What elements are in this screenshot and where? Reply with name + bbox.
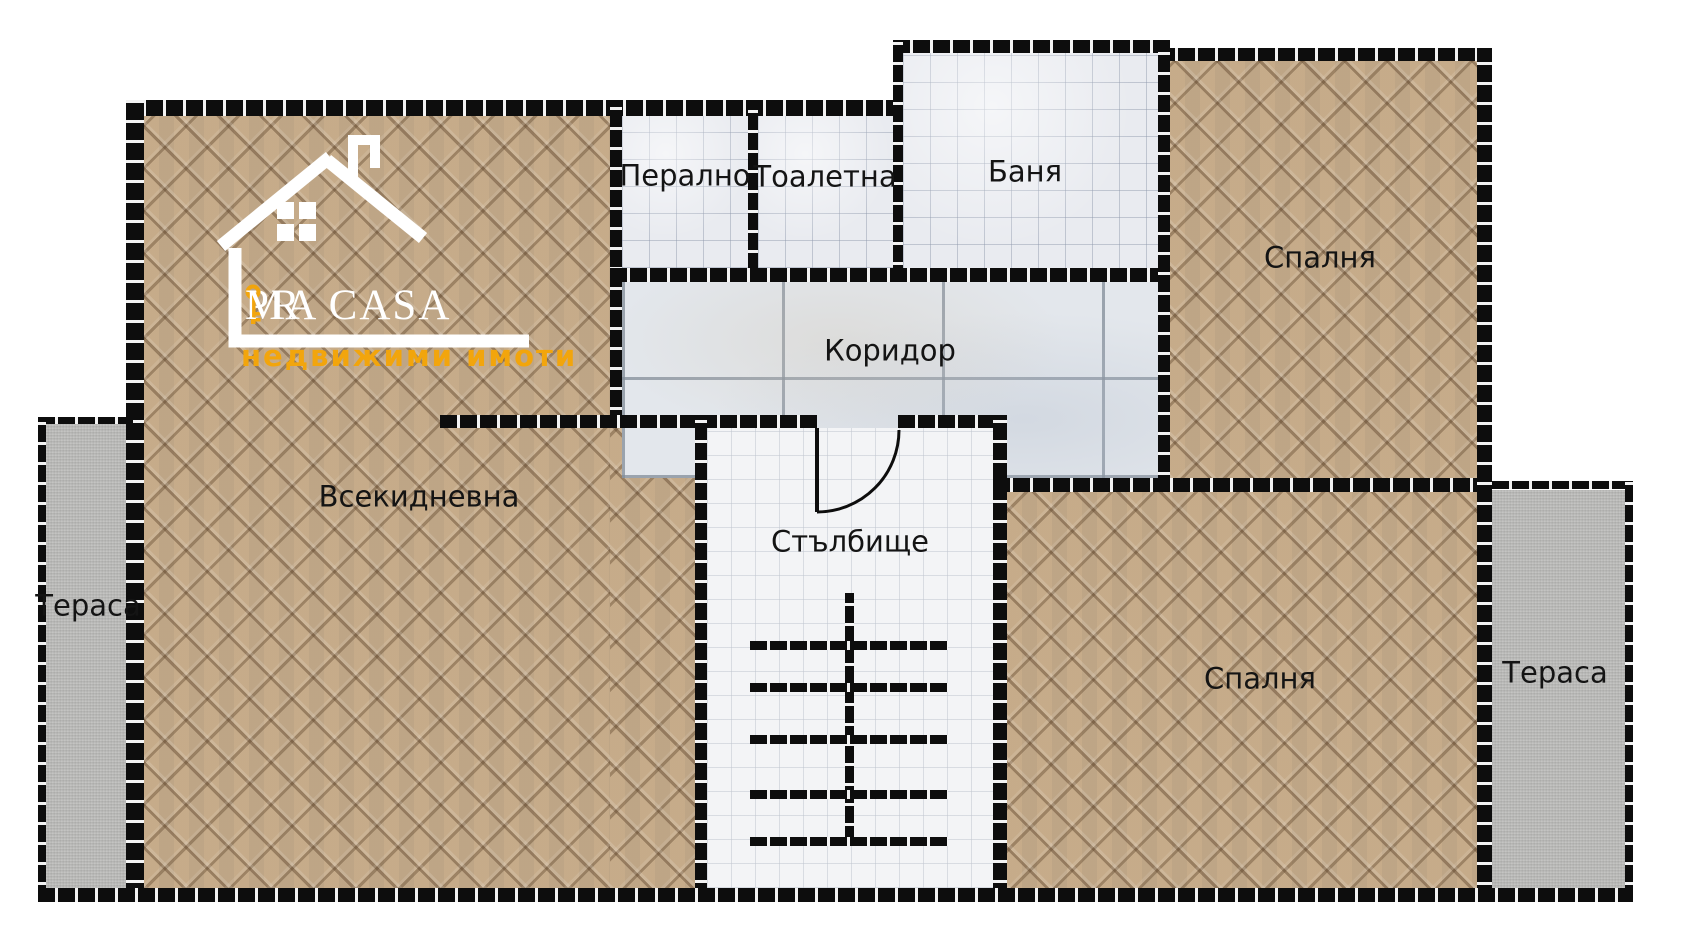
- wall-bottom-main: [38, 888, 1633, 902]
- stair-tread: [750, 790, 948, 799]
- terrace-right-label: Тераса: [1502, 659, 1607, 688]
- wall-bath-top: [893, 40, 1170, 53]
- stair-tread: [750, 735, 948, 744]
- wall-staircase-top-left: [440, 415, 817, 428]
- stair-tread: [750, 683, 948, 692]
- wall-terrace-left-top: [38, 417, 133, 424]
- door-swing-arc: [815, 428, 901, 514]
- wall-top-main: [126, 100, 903, 116]
- bathroom-label: Баня: [988, 158, 1062, 187]
- living-room-label: Всекидневна: [319, 483, 520, 512]
- wall-bedroom-top-left: [1158, 48, 1170, 492]
- wall-wet-rooms-bottom: [610, 268, 1170, 282]
- living-room-floor-lower: [610, 420, 707, 888]
- toilet-label: Тоалетна: [753, 163, 896, 192]
- bedroom-bottom-label: Спалня: [1204, 665, 1316, 694]
- bedroom-top-label: Спалня: [1264, 244, 1376, 273]
- stair-tread: [750, 837, 948, 846]
- agency-logo: PR MA CASA недвижими имоти: [215, 128, 551, 380]
- wall-terrace-right-outer: [1625, 481, 1633, 902]
- stair-stringer: [845, 593, 854, 843]
- staircase-label: Стълбище: [771, 528, 929, 557]
- wall-terrace-left-outer: [38, 417, 46, 902]
- brand-tagline: недвижими имоти: [241, 342, 541, 371]
- wall-bedroom-top: [1158, 48, 1492, 61]
- wall-terrace-right-top: [1492, 481, 1633, 489]
- wall-bedrooms-right: [1477, 48, 1492, 902]
- corridor-label: Коридор: [824, 337, 956, 366]
- terrace-left-label: Тераса: [35, 592, 140, 621]
- terrace-left-floor: [46, 424, 133, 888]
- wall-staircase-top-right: [898, 415, 1007, 428]
- stair-tread: [750, 641, 948, 650]
- wall-laundry-left: [610, 100, 622, 427]
- floor-plan: Всекидневна Перално Тоалетна Баня Коридо…: [0, 0, 1688, 950]
- wall-bedroom-divider: [993, 478, 1492, 492]
- laundry-label: Перално: [619, 162, 750, 191]
- wall-left-main: [126, 100, 144, 900]
- wall-staircase-left: [695, 415, 707, 900]
- brand-name: PR MA CASA: [245, 284, 535, 332]
- brand-name-part2: MA CASA: [245, 284, 451, 327]
